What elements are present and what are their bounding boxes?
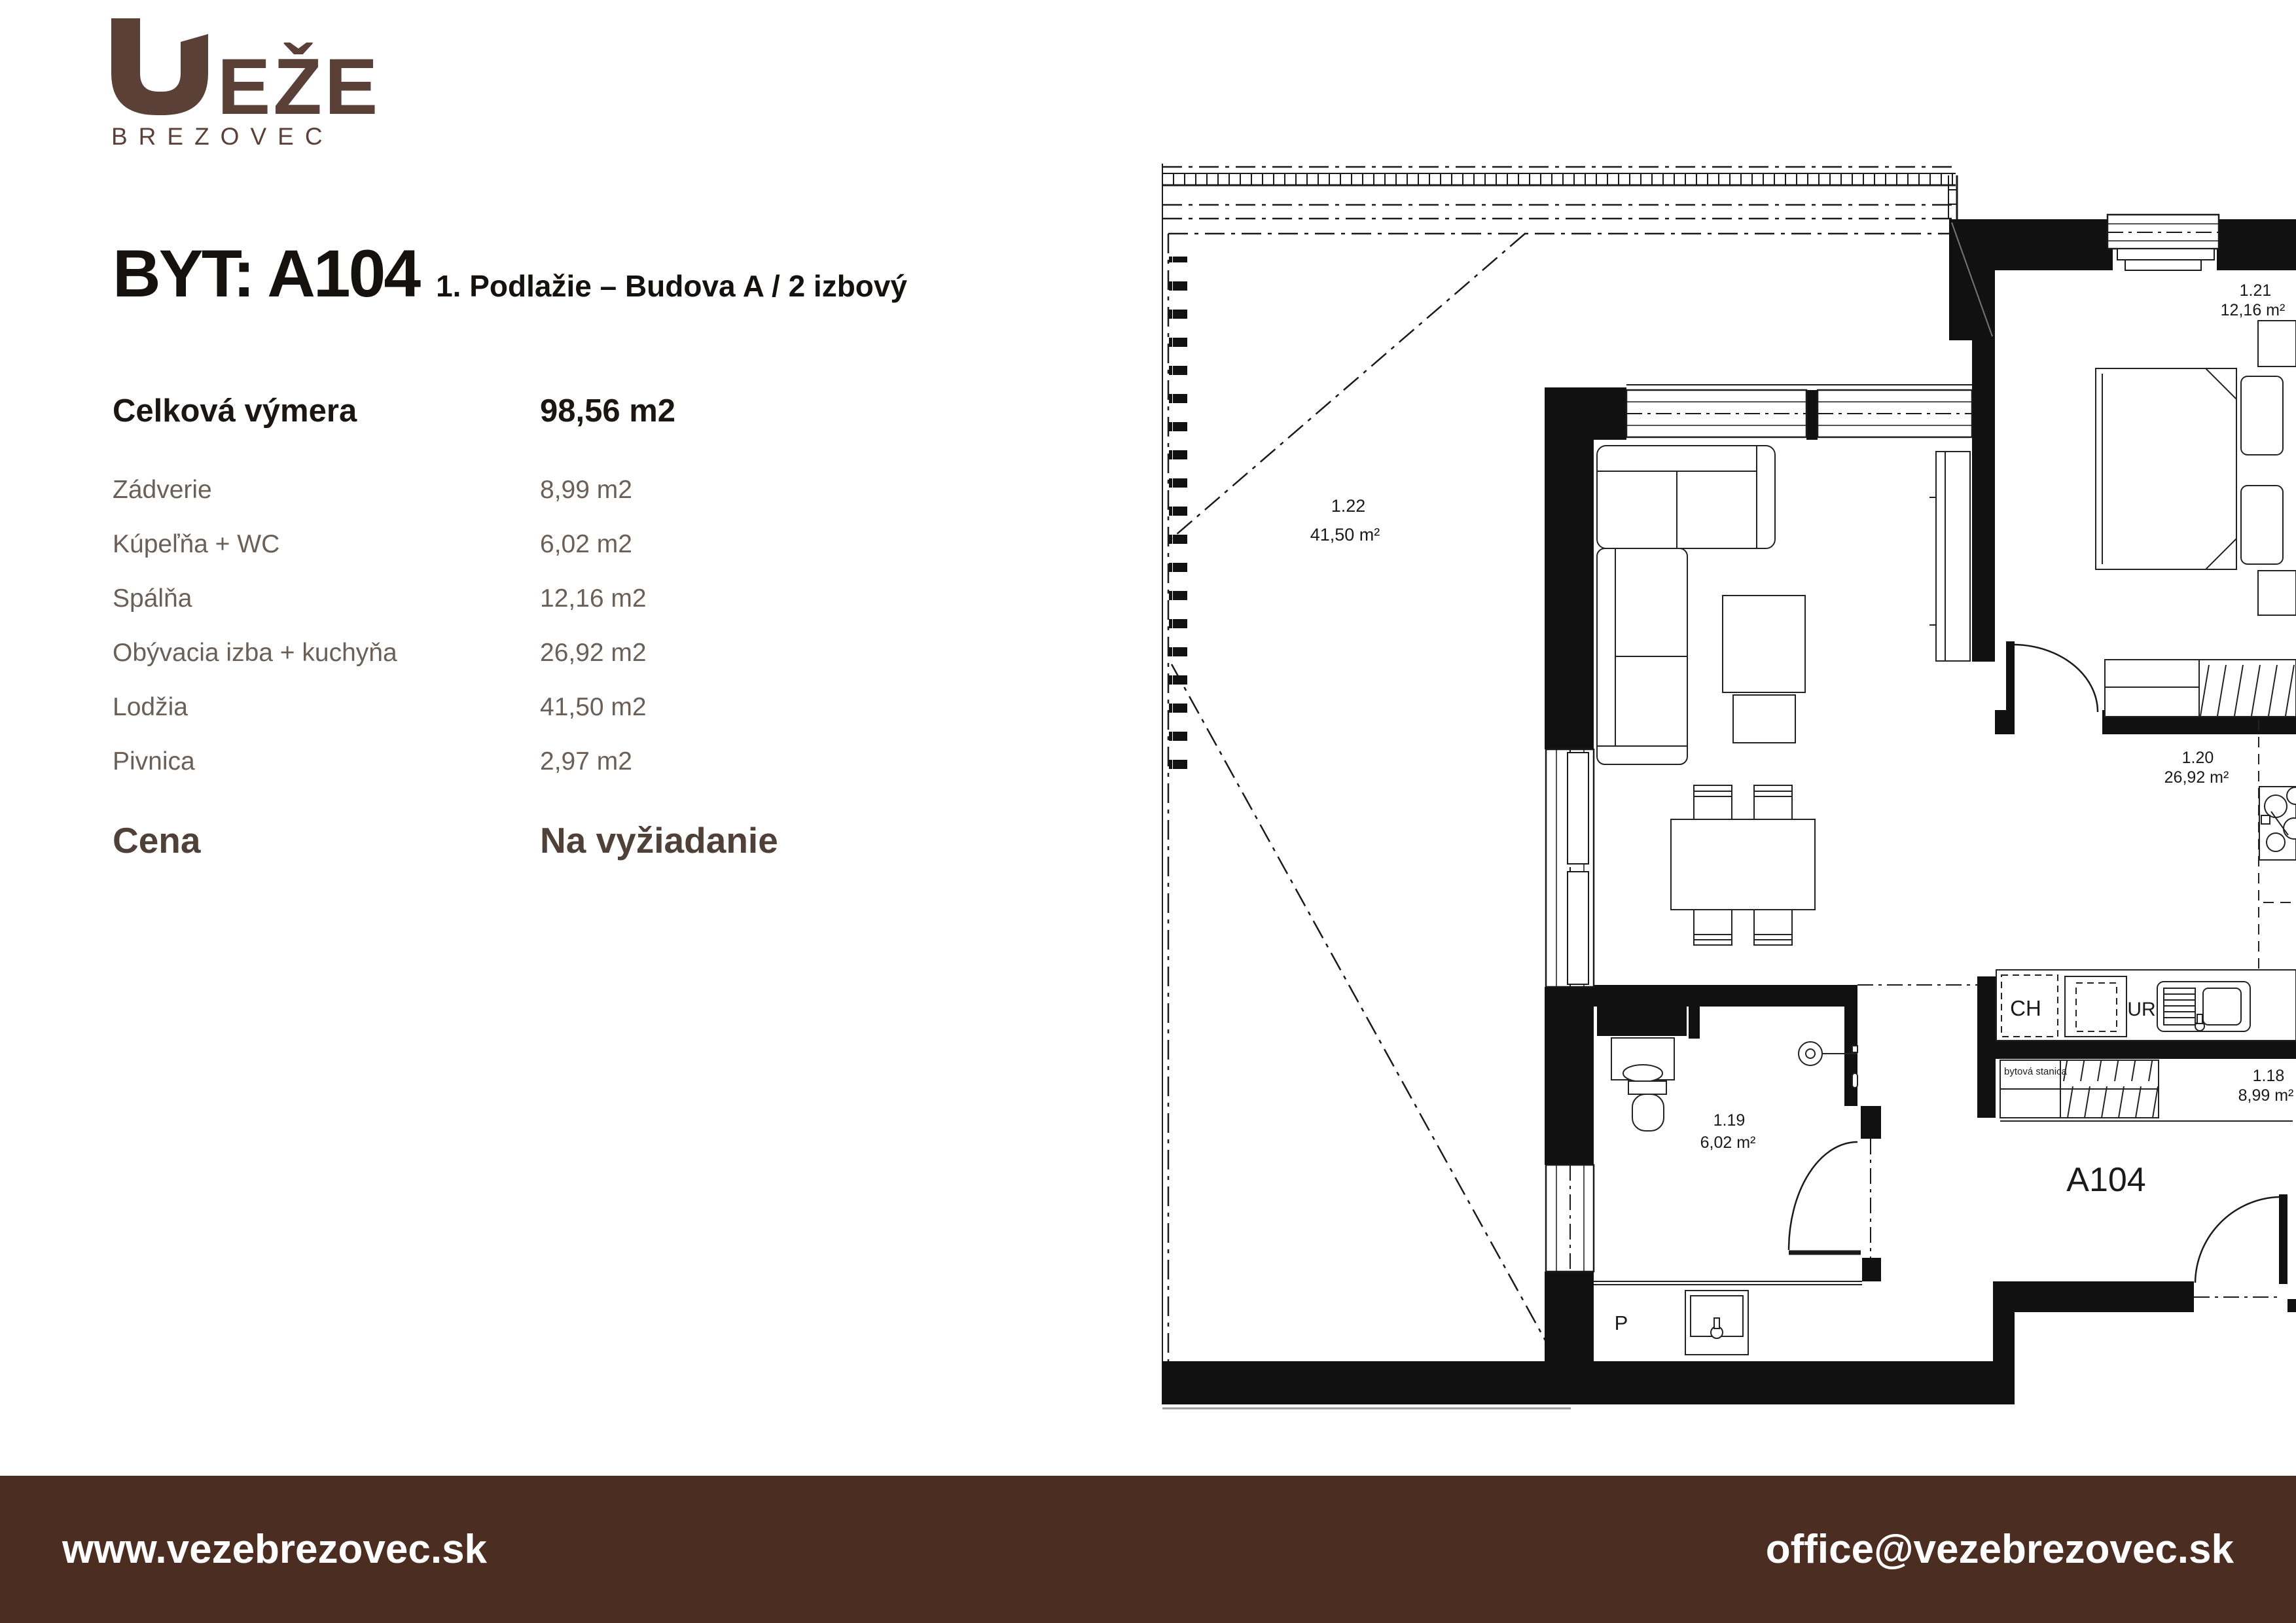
row-label: Pivnica (113, 747, 195, 776)
title-block: BYT: A104 1. Podlažie – Budova A / 2 izb… (113, 236, 907, 312)
page-title: BYT: A104 (113, 236, 419, 312)
row-value: 6,02 m2 (540, 530, 632, 559)
row-value: 2,97 m2 (540, 747, 632, 776)
price-label: Cena (113, 820, 201, 861)
total-area-label: Celková výmera (113, 393, 357, 429)
row-label: Spálňa (113, 584, 192, 613)
ottoman (1733, 695, 1795, 743)
room-code-living: 1.20 (2182, 749, 2214, 767)
room-area-living: 26,92 m² (2164, 768, 2229, 787)
brand-letters: EŽE (217, 42, 380, 116)
floor-plan: 1.22 41,50 m² 1.21 12,16 m² 1.20 26,92 m… (1152, 151, 2296, 1420)
table-row: Kúpeľňa + WC 6,02 m2 (113, 530, 279, 559)
utility-station-label: bytová stanica (2004, 1066, 2068, 1077)
oven-label: UR (2127, 999, 2155, 1020)
price-value: Na vyžiadanie (540, 819, 778, 861)
page-subtitle: 1. Podlažie – Budova A / 2 izbový (436, 268, 907, 304)
row-label: Kúpeľňa + WC (113, 530, 279, 558)
row-value: 26,92 m2 (540, 639, 647, 668)
bedroom-furniture (2096, 321, 2296, 717)
room-area-hall: 8,99 m² (2238, 1086, 2294, 1105)
row-value: 41,50 m2 (540, 693, 647, 722)
tv-board (1929, 452, 1970, 661)
kitchen (1996, 720, 2296, 1041)
room-area-loggia: 41,50 m² (1310, 525, 1380, 544)
table-row: Obývacia izba + kuchyňa 26,92 m2 (113, 639, 397, 668)
row-label: Lodžia (113, 693, 188, 721)
table-row: Zádverie 8,99 m2 (113, 476, 212, 505)
table-row: Spálňa 12,16 m2 (113, 584, 192, 613)
coffee-table (1723, 596, 1805, 692)
table-row: Lodžia 41,50 m2 (113, 693, 188, 722)
dining-set (1671, 785, 1815, 945)
room-code-loggia: 1.22 (1331, 496, 1366, 516)
footer-website-link[interactable]: www.vezebrezovec.sk (62, 1476, 487, 1623)
brand-subname: BREZOVEC (111, 123, 386, 151)
room-code-hall: 1.18 (2253, 1067, 2285, 1085)
brand-wordmark: EŽE (111, 18, 386, 116)
room-area-bedroom: 12,16 m² (2221, 301, 2286, 319)
floor-plan-drawing: 1.22 41,50 m² 1.21 12,16 m² 1.20 26,92 m… (1152, 151, 2296, 1420)
room-code-bathroom: 1.19 (1713, 1111, 1746, 1130)
cellar-room (1594, 1281, 1862, 1355)
room-code-bedroom: 1.21 (2240, 281, 2272, 300)
row-label: Zádverie (113, 476, 212, 504)
brand-logo: EŽE BREZOVEC (111, 18, 386, 151)
fridge-label: CH (2010, 996, 2041, 1020)
total-area-row: Celková výmera 98,56 m2 (113, 393, 357, 429)
table-row: Pivnica 2,97 m2 (113, 747, 195, 776)
cellar-label: P (1615, 1311, 1628, 1334)
row-value: 12,16 m2 (540, 584, 647, 613)
veze-logo-icon: EŽE (111, 18, 386, 116)
room-area-bathroom: 6,02 m² (1700, 1133, 1756, 1152)
footer-bar: www.vezebrezovec.sk office@vezebrezovec.… (0, 1476, 2296, 1623)
flyer-page: EŽE BREZOVEC BYT: A104 1. Podlažie – Bud… (0, 0, 2296, 1623)
row-label: Obývacia izba + kuchyňa (113, 639, 397, 667)
price-row: Cena Na vyžiadanie (113, 819, 201, 861)
row-value: 8,99 m2 (540, 476, 632, 505)
total-area-value: 98,56 m2 (540, 393, 675, 429)
apartment-number-label: A104 (2066, 1161, 2145, 1199)
footer-email-link[interactable]: office@vezebrezovec.sk (1766, 1476, 2234, 1623)
